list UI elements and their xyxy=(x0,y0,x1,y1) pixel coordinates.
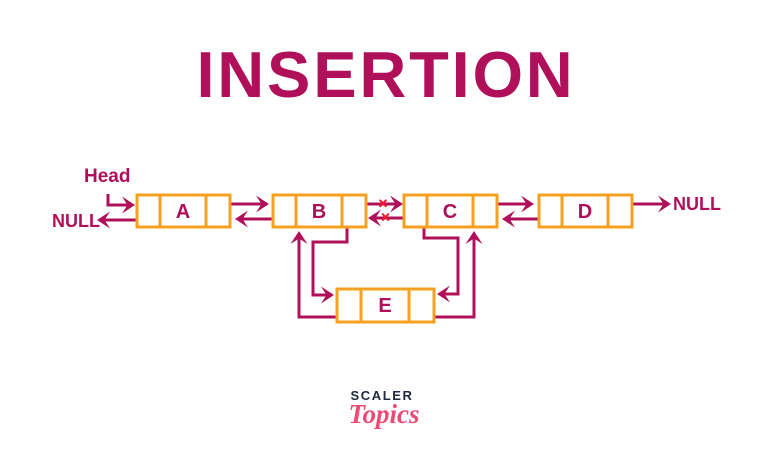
svg-text:INSERTION: INSERTION xyxy=(196,38,575,111)
svg-text:NULL: NULL xyxy=(673,194,721,214)
svg-text:NULL: NULL xyxy=(52,211,100,231)
svg-text:Head: Head xyxy=(84,166,130,187)
svg-text:C: C xyxy=(443,201,457,223)
svg-text:D: D xyxy=(578,201,592,223)
svg-text:Topics: Topics xyxy=(348,399,419,429)
svg-text:B: B xyxy=(312,201,326,223)
svg-text:A: A xyxy=(176,201,190,223)
svg-text:E: E xyxy=(378,295,391,317)
